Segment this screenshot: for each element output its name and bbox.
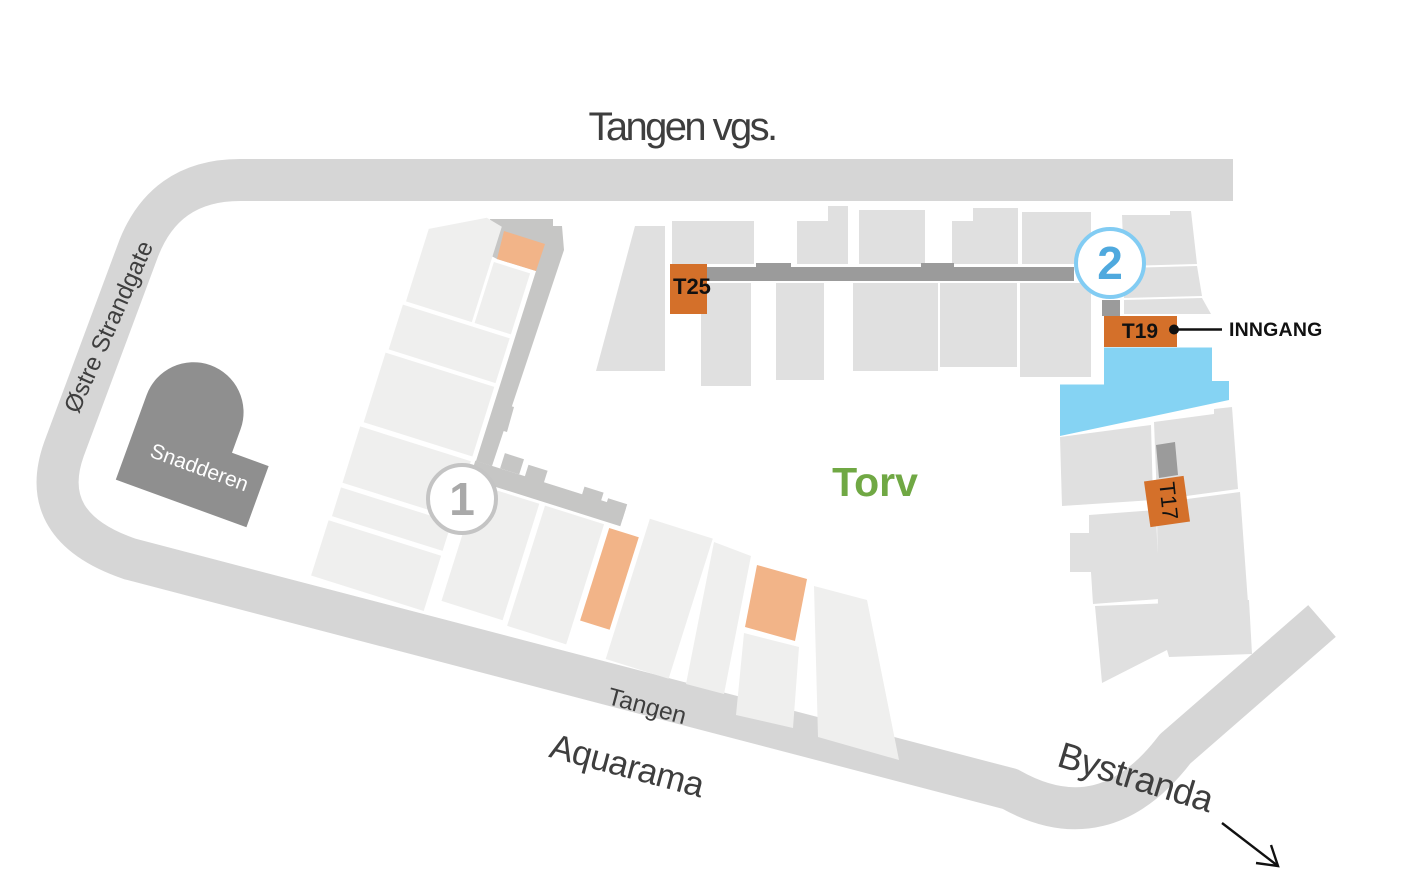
svg-text:T17: T17 bbox=[1154, 481, 1183, 521]
svg-text:1: 1 bbox=[449, 473, 475, 525]
svg-text:Torv: Torv bbox=[832, 459, 918, 505]
svg-text:Østre Strandgate: Østre Strandgate bbox=[59, 237, 159, 417]
svg-text:Tangen vgs.: Tangen vgs. bbox=[588, 105, 775, 149]
svg-text:T19: T19 bbox=[1122, 320, 1158, 343]
svg-text:Aquarama: Aquarama bbox=[546, 727, 709, 806]
svg-text:2: 2 bbox=[1097, 237, 1123, 289]
svg-text:INNGANG: INNGANG bbox=[1229, 319, 1322, 341]
svg-text:T25: T25 bbox=[673, 274, 711, 299]
